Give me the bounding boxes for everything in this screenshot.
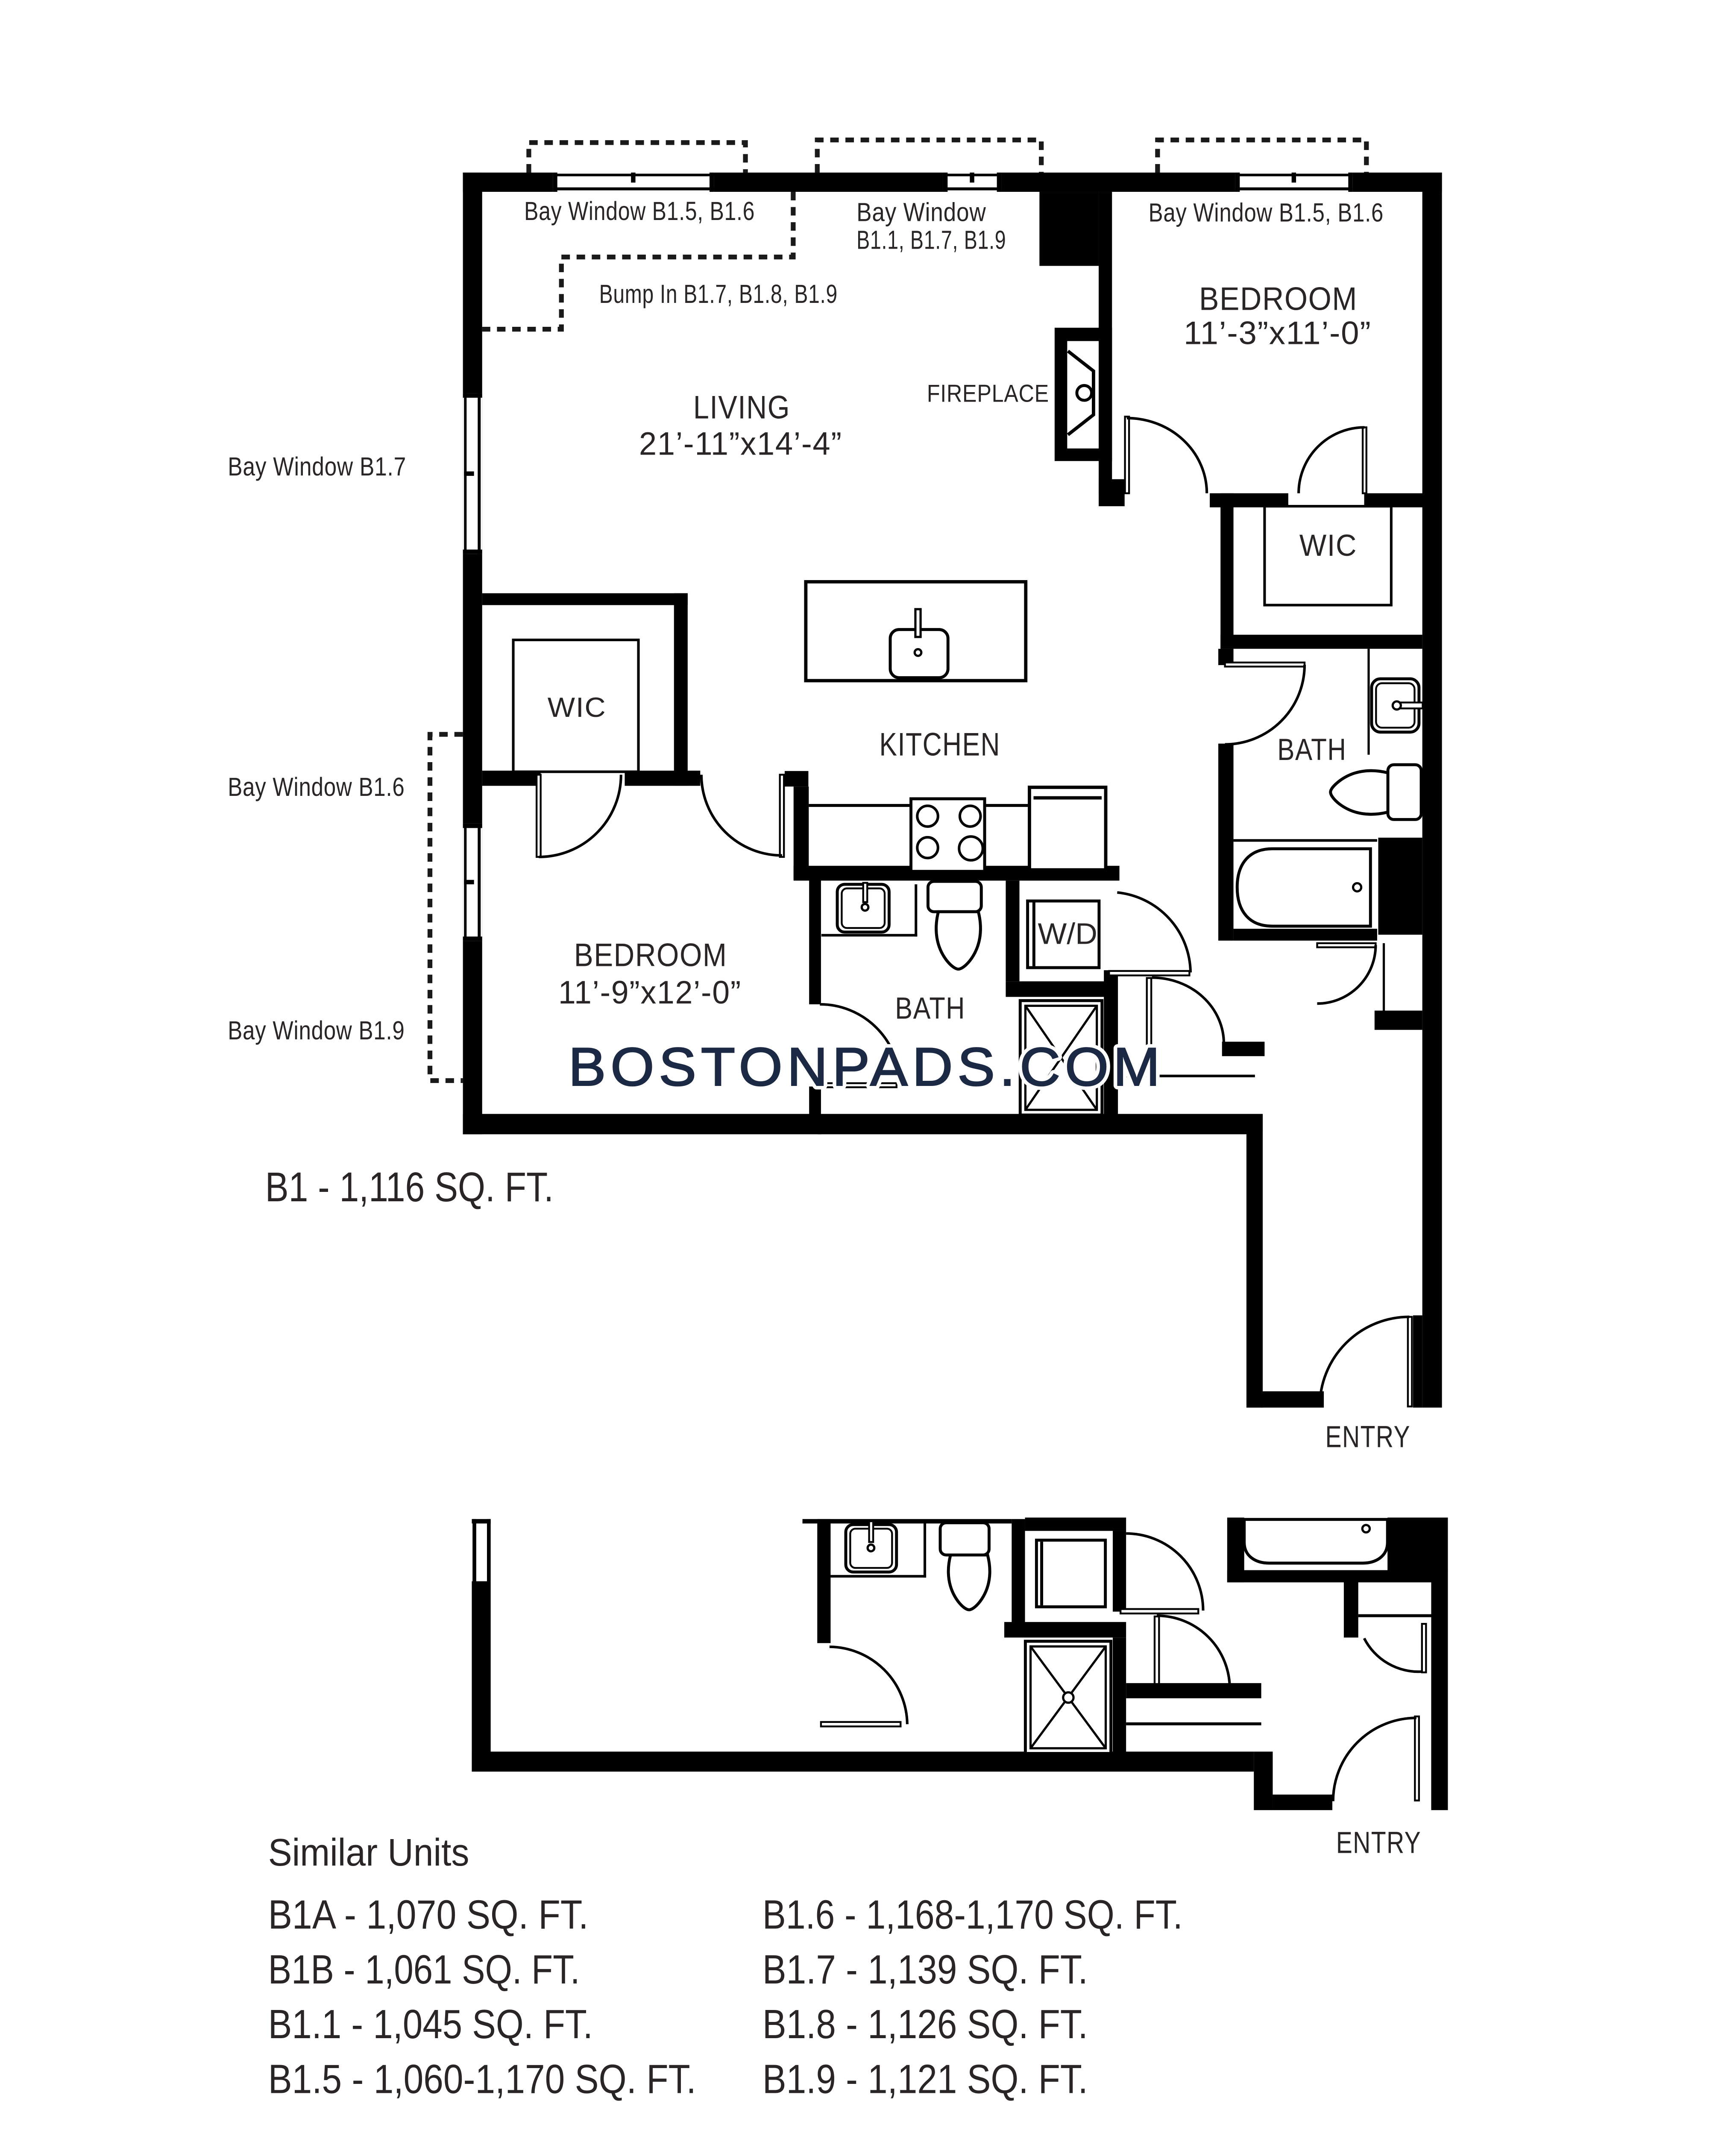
svg-text:BATH: BATH xyxy=(1277,733,1346,767)
svg-text:LIVING: LIVING xyxy=(693,390,790,426)
svg-text:WIC: WIC xyxy=(548,692,607,723)
svg-text:BEDROOM: BEDROOM xyxy=(1199,281,1358,317)
svg-text:WIC: WIC xyxy=(1299,529,1357,563)
svg-text:BATH: BATH xyxy=(895,992,965,1026)
svg-text:21’-11”x14’-4”: 21’-11”x14’-4” xyxy=(639,425,842,462)
svg-text:B1A - 1,070 SQ. FT.: B1A - 1,070 SQ. FT. xyxy=(268,1892,589,1938)
svg-text:ENTRY: ENTRY xyxy=(1325,1420,1410,1454)
svg-text:B1.8 - 1,126 SQ. FT.: B1.8 - 1,126 SQ. FT. xyxy=(762,2002,1088,2047)
svg-text:11’-3”x11’-0”: 11’-3”x11’-0” xyxy=(1184,315,1371,351)
svg-text:11’-9”x12’-0”: 11’-9”x12’-0” xyxy=(558,974,742,1011)
svg-text:W/D: W/D xyxy=(1038,917,1097,951)
svg-text:Bay Window B1.5, B1.6: Bay Window B1.5, B1.6 xyxy=(524,197,755,226)
svg-text:B1.9 - 1,121 SQ. FT.: B1.9 - 1,121 SQ. FT. xyxy=(762,2057,1088,2102)
svg-text:B1.1 - 1,045 SQ. FT.: B1.1 - 1,045 SQ. FT. xyxy=(268,2002,593,2047)
svg-text:BEDROOM: BEDROOM xyxy=(574,937,727,974)
svg-text:Bay Window B1.6: Bay Window B1.6 xyxy=(228,772,405,802)
svg-text:B1.5 - 1,060-1,170 SQ. FT.: B1.5 - 1,060-1,170 SQ. FT. xyxy=(268,2057,696,2102)
svg-text:B1B - 1,061 SQ. FT.: B1B - 1,061 SQ. FT. xyxy=(268,1947,580,1992)
svg-text:B1.7 - 1,139 SQ. FT.: B1.7 - 1,139 SQ. FT. xyxy=(762,1947,1088,1992)
svg-text:FIREPLACE: FIREPLACE xyxy=(927,380,1049,408)
svg-text:Bay Window: Bay Window xyxy=(856,198,986,227)
svg-text:Similar Units: Similar Units xyxy=(268,1831,469,1874)
svg-text:Bay Window B1.7: Bay Window B1.7 xyxy=(228,452,406,481)
svg-text:B1.1, B1.7, B1.9: B1.1, B1.7, B1.9 xyxy=(856,226,1006,255)
svg-text:Bay Window B1.9: Bay Window B1.9 xyxy=(228,1016,405,1045)
svg-text:B1.6 - 1,168-1,170 SQ. FT.: B1.6 - 1,168-1,170 SQ. FT. xyxy=(762,1892,1183,1938)
svg-text:B1 - 1,116 SQ. FT.: B1 - 1,116 SQ. FT. xyxy=(265,1164,554,1210)
svg-text:BOSTONPADS.COM: BOSTONPADS.COM xyxy=(569,1036,1165,1097)
svg-text:Bump In B1.7, B1.8, B1.9: Bump In B1.7, B1.8, B1.9 xyxy=(599,279,838,309)
svg-text:Bay Window B1.5, B1.6: Bay Window B1.5, B1.6 xyxy=(1149,198,1384,227)
svg-text:ENTRY: ENTRY xyxy=(1336,1826,1421,1860)
svg-text:KITCHEN: KITCHEN xyxy=(879,726,1000,763)
